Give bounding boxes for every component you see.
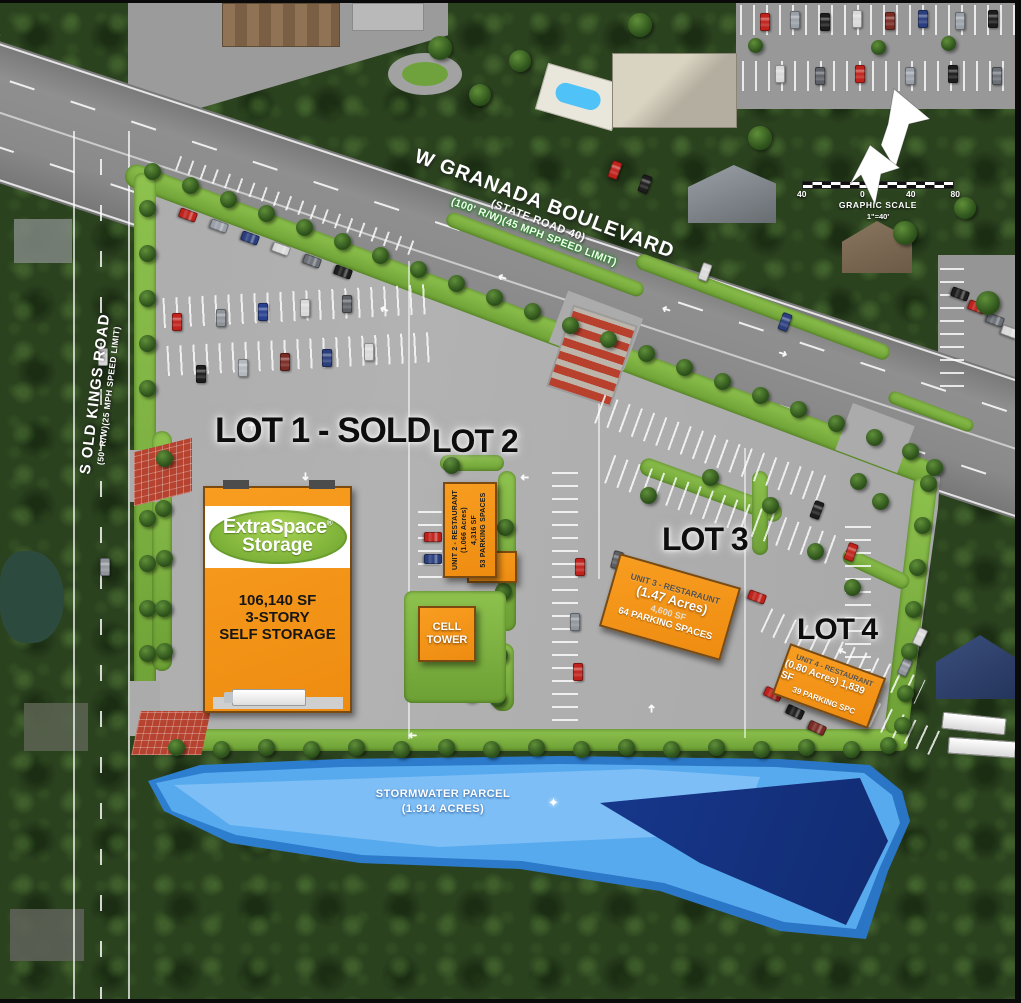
tree-icon	[156, 550, 173, 567]
pavement-arrow-icon	[408, 729, 417, 740]
tree-icon	[600, 331, 617, 348]
unit2-line4: 53 PARKING SPACES	[479, 478, 488, 582]
tree-icon	[905, 601, 922, 618]
tree-icon	[640, 487, 657, 504]
tree-icon	[752, 387, 769, 404]
car	[570, 613, 580, 631]
tree-icon	[139, 245, 156, 262]
car	[988, 10, 998, 28]
storage-use: SELF STORAGE	[205, 626, 350, 643]
tree-icon	[894, 717, 911, 734]
tree-icon	[941, 36, 956, 51]
west-house	[14, 219, 72, 263]
landscape-buffer-south	[136, 729, 908, 751]
extra-space-logo: ExtraSpace® Storage	[209, 510, 347, 564]
tree-icon	[156, 643, 173, 660]
tree-icon	[748, 38, 763, 53]
extra-space-storage-building: ExtraSpace® Storage 106,140 SF 3-STORY S…	[203, 486, 352, 713]
tree-icon	[880, 737, 897, 754]
unit2-line1: UNIT 2 - RESTAURANT	[451, 478, 460, 582]
unit2-line2: (1.066 Acres)	[461, 478, 470, 582]
tree-icon	[155, 500, 172, 517]
tree-icon	[155, 600, 172, 617]
tree-icon	[220, 191, 237, 208]
pavement-arrow-icon	[520, 471, 529, 482]
tree-icon	[168, 739, 185, 756]
lot2-label: LOT 2	[432, 423, 518, 460]
scale-tick: 80	[951, 189, 960, 199]
car	[607, 160, 623, 180]
lot3-label: LOT 3	[662, 521, 748, 558]
tree-icon	[798, 739, 815, 756]
circular-driveway	[388, 53, 462, 95]
tree-icon	[562, 317, 579, 334]
tree-icon	[483, 741, 500, 758]
tree-icon	[909, 559, 926, 576]
tree-icon	[914, 517, 931, 534]
tree-icon	[139, 555, 156, 572]
tree-icon	[334, 233, 351, 250]
tree-icon	[303, 741, 320, 758]
tree-icon	[976, 291, 1000, 315]
rv-vehicle	[947, 737, 1016, 759]
cell-tower-line1: CELL	[433, 621, 462, 634]
tree-icon	[497, 519, 514, 536]
truck	[232, 689, 306, 706]
cell-tower-parcel: CELL TOWER	[418, 606, 476, 662]
car	[322, 349, 332, 367]
extra-space-logo-band: ExtraSpace® Storage	[205, 506, 350, 568]
tree-icon	[897, 685, 914, 702]
tree-icon	[213, 741, 230, 758]
tree-icon	[486, 289, 503, 306]
swimming-pool	[553, 80, 603, 112]
clubhouse-building	[612, 53, 737, 128]
tree-icon	[828, 415, 845, 432]
tree-icon	[708, 739, 725, 756]
top-left-building	[222, 3, 340, 47]
car	[955, 12, 965, 30]
tree-icon	[866, 429, 883, 446]
tree-icon	[893, 221, 917, 245]
stormwater-pond: STORMWATER PARCEL (1.914 ACRES)	[140, 751, 920, 951]
tree-icon	[843, 741, 860, 758]
tree-icon	[628, 13, 652, 37]
roof-unit	[309, 480, 335, 489]
car	[196, 365, 206, 383]
lot1-label: LOT 1 - SOLD	[215, 411, 431, 451]
car	[760, 13, 770, 31]
tree-icon	[139, 290, 156, 307]
car	[424, 554, 442, 564]
tree-icon	[469, 84, 491, 106]
car	[424, 532, 442, 542]
car	[820, 13, 830, 31]
parking-stripes	[418, 508, 442, 578]
roof-unit	[223, 480, 249, 489]
tree-icon	[638, 345, 655, 362]
water-sparkle-icon	[548, 795, 559, 811]
car	[280, 353, 290, 371]
car	[775, 65, 785, 83]
tree-icon	[528, 739, 545, 756]
registered-mark: ®	[327, 519, 332, 528]
car	[100, 558, 110, 576]
west-pond	[0, 551, 64, 643]
storage-area: 106,140 SF	[205, 592, 350, 609]
tree-icon	[618, 739, 635, 756]
tree-icon	[872, 493, 889, 510]
tree-icon	[393, 741, 410, 758]
tree-icon	[902, 443, 919, 460]
tree-icon	[702, 469, 719, 486]
car	[948, 65, 958, 83]
tree-icon	[448, 275, 465, 292]
car	[238, 359, 248, 377]
tree-icon	[901, 643, 918, 660]
tree-icon	[753, 741, 770, 758]
brand-name-bottom: Storage	[242, 537, 313, 555]
scale-ratio: 1"=40'	[798, 212, 958, 221]
car	[918, 10, 928, 28]
car	[216, 309, 226, 327]
tree-icon	[573, 741, 590, 758]
car	[637, 174, 653, 194]
parking-stripes	[940, 265, 964, 387]
car	[300, 299, 310, 317]
car	[172, 313, 182, 331]
tree-icon	[920, 475, 937, 492]
lot4-label: LOT 4	[797, 613, 877, 647]
tree-icon	[410, 261, 427, 278]
tree-icon	[663, 741, 680, 758]
car	[992, 67, 1002, 85]
tree-icon	[676, 359, 693, 376]
tree-icon	[258, 739, 275, 756]
cell-tower-line2: TOWER	[427, 634, 468, 647]
tree-icon	[258, 205, 275, 222]
tree-icon	[139, 510, 156, 527]
tree-icon	[748, 126, 772, 150]
tree-icon	[509, 50, 531, 72]
scale-tick: 40	[797, 189, 806, 199]
tree-icon	[871, 40, 886, 55]
pavement-arrow-icon	[647, 704, 658, 713]
car	[258, 303, 268, 321]
car	[575, 558, 585, 576]
tree-icon	[524, 303, 541, 320]
car	[790, 11, 800, 29]
unit2-line3: 4,316 SF	[470, 478, 479, 582]
navy-roof-house	[936, 635, 1016, 699]
car	[885, 12, 895, 30]
tree-icon	[714, 373, 731, 390]
gray-roof-house	[688, 165, 776, 223]
tree-icon	[296, 219, 313, 236]
storage-building-info: 106,140 SF 3-STORY SELF STORAGE	[205, 592, 350, 643]
tree-icon	[850, 473, 867, 490]
tree-icon	[144, 163, 161, 180]
car	[364, 343, 374, 361]
north-arrow-icon	[836, 87, 946, 207]
tree-icon	[139, 200, 156, 217]
tree-icon	[762, 497, 779, 514]
unit2-label: UNIT 2 - RESTAURANT (1.066 Acres) 4,316 …	[451, 478, 489, 582]
parking-stripes	[740, 5, 1018, 35]
tree-icon	[844, 579, 861, 596]
tree-icon	[807, 543, 824, 560]
car	[852, 10, 862, 28]
lot-boundary-line	[744, 448, 746, 738]
car	[815, 67, 825, 85]
site-plan-canvas: STORMWATER PARCEL (1.914 ACRES) ExtraSpa…	[0, 0, 1021, 1003]
car	[855, 65, 865, 83]
top-left-small-building	[352, 3, 424, 31]
car	[905, 67, 915, 85]
tree-icon	[372, 247, 389, 264]
tree-icon	[790, 401, 807, 418]
tree-icon	[139, 600, 156, 617]
car	[342, 295, 352, 313]
tree-icon	[428, 36, 452, 60]
tree-icon	[348, 739, 365, 756]
rv-vehicle	[941, 712, 1006, 736]
storage-stories: 3-STORY	[205, 609, 350, 626]
tree-icon	[182, 177, 199, 194]
tree-icon	[438, 739, 455, 756]
tree-icon	[139, 645, 156, 662]
tree-icon	[926, 459, 943, 476]
tree-icon	[156, 450, 173, 467]
car	[573, 663, 583, 681]
parking-stripes	[552, 471, 578, 721]
tree-icon	[139, 380, 156, 397]
tree-icon	[139, 335, 156, 352]
unit2-restaurant-building: UNIT 2 - RESTAURANT (1.066 Acres) 4,316 …	[443, 482, 497, 578]
